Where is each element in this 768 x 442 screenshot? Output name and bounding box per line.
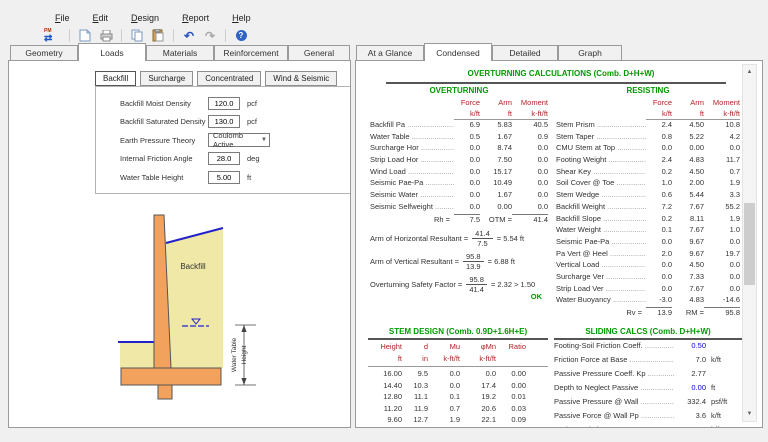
menu-file[interactable]: File — [52, 11, 73, 25]
moment-value: 1.9 — [704, 214, 740, 223]
row-label: Surcharge Hor — [370, 143, 454, 152]
force-value: 0.0 — [646, 284, 672, 293]
field-unit: pcf — [247, 117, 257, 126]
toolbar-separator — [121, 29, 122, 42]
mu-value: 0.1 — [428, 392, 460, 401]
arm-value: 7.67 — [672, 202, 704, 211]
ratio-value: 0.00 — [496, 369, 526, 378]
rm-label: RM = — [672, 308, 704, 317]
new-document-button[interactable] — [77, 28, 93, 43]
table-header-row: ForceArmMoment — [556, 98, 740, 109]
tab-geometry[interactable]: Geometry — [10, 45, 78, 61]
ratio-value: 0.09 — [496, 415, 526, 424]
table-row: Stem Wedge 0.6 5.44 3.3 — [556, 190, 740, 202]
col-unit: k-ft/ft — [512, 109, 548, 120]
sliding-rows: Footing-Soil Friction Coeff. 0.50 Fricti… — [554, 341, 742, 428]
numerator: 95.8 — [463, 252, 484, 262]
copy-button[interactable] — [129, 28, 145, 43]
arm-value: 7.67 — [672, 225, 704, 234]
table-row: 12.80 11.1 0.1 19.2 0.01 — [368, 392, 548, 404]
table-row: Stem Prism 2.4 4.50 10.8 — [556, 120, 740, 132]
moment-value: 0.0 — [512, 178, 548, 187]
earth-pressure-theory-select[interactable]: Coulomb Active ▼ — [208, 133, 270, 147]
load-type-buttons: Backfill Surcharge Concentrated Wind & S… — [95, 71, 337, 86]
height-value: 14.40 — [368, 381, 402, 390]
force-value: 2.4 — [646, 120, 672, 129]
table-row: Soil Cover @ Toe 1.0 2.00 1.9 — [556, 178, 740, 190]
phi-mn-value: 19.2 — [460, 392, 496, 401]
internal-friction-angle-input[interactable] — [208, 152, 240, 165]
formula-label: Overturning Safety Factor = — [370, 280, 462, 289]
scrollbar-thumb[interactable] — [744, 203, 755, 285]
field-label: Backfill Moist Density — [120, 99, 208, 108]
force-value: 0.0 — [646, 237, 672, 246]
field-label: Earth Pressure Theory — [120, 136, 208, 145]
total-moment: 41.4 — [512, 214, 548, 224]
row-label: Depth to Neglect Passive — [554, 383, 674, 392]
col-unit: k-ft/ft — [428, 354, 460, 363]
table-row: Horiz. Resisting Force 10.6 k/ft — [554, 425, 742, 428]
tab-detailed[interactable]: Detailed — [492, 45, 558, 61]
moment-value: 1.9 — [704, 178, 740, 187]
arm-value: 4.50 — [672, 167, 704, 176]
application-window: File Edit Design Report Help PM ⇄ ↶ ↷ ? … — [0, 0, 768, 442]
subtab-concentrated[interactable]: Concentrated — [197, 71, 261, 86]
row-unit: psf/ft — [706, 397, 742, 406]
menu-edit[interactable]: Edit — [90, 11, 112, 25]
subtab-backfill[interactable]: Backfill — [95, 71, 136, 86]
col-unit: ft — [672, 109, 704, 120]
moment-value: 19.7 — [704, 249, 740, 258]
moment-value: 0.0 — [512, 190, 548, 199]
header-underline — [368, 366, 548, 367]
row-unit: k/ft — [706, 411, 742, 420]
table-row: Seismic Pae-Pa 0.0 10.49 0.0 — [370, 178, 548, 190]
force-value: 0.0 — [454, 167, 480, 176]
table-row: Strip Load Ver 0.0 7.67 0.0 — [556, 284, 740, 296]
moment-value: 0.0 — [704, 284, 740, 293]
row-label: Backfill Weight — [556, 202, 646, 211]
title-rule — [386, 82, 726, 84]
otm-label: OTM = — [480, 215, 512, 224]
stem-header-row: Height d Mu φMn Ratio — [368, 342, 548, 354]
height-value: 11.20 — [368, 404, 402, 413]
force-value: 1.0 — [646, 178, 672, 187]
arm-value: 9.67 — [672, 249, 704, 258]
tab-graph[interactable]: Graph — [558, 45, 622, 61]
water-table-height-input[interactable] — [208, 171, 240, 184]
table-units-row: k/ftftk-ft/ft — [370, 109, 548, 120]
force-value: 0.0 — [646, 260, 672, 269]
col-header: d — [402, 342, 428, 351]
new-document-icon — [79, 29, 91, 42]
phi-mn-value: 22.1 — [460, 415, 496, 424]
row-label: Vertical Load — [556, 260, 646, 269]
dimension-label-line2: Height — [241, 345, 248, 364]
tab-loads[interactable]: Loads — [78, 43, 146, 61]
moment-value: 0.0 — [512, 202, 548, 211]
row-label: Backfill Slope — [556, 214, 646, 223]
row-label: Water Weight — [556, 225, 646, 234]
redo-icon: ↷ — [205, 29, 215, 43]
col-header: Arm — [672, 98, 704, 109]
table-row: Strip Load Hor 0.0 7.50 0.0 — [370, 155, 548, 167]
table-row: Footing Weight 2.4 4.83 11.7 — [556, 155, 740, 167]
total-moment: 95.8 — [704, 307, 740, 317]
row-value: 3.6 — [674, 411, 706, 420]
table-row: Seismic Pae-Pa 0.0 9.67 0.0 — [556, 237, 740, 249]
resisting-table: ForceArmMoment k/ftftk-ft/ft Stem Prism … — [556, 98, 740, 319]
undo-button[interactable]: ↶ — [181, 28, 197, 43]
sync-arrows-icon: ⇄ — [44, 34, 52, 43]
field-row: Backfill Saturated Density pcf — [96, 113, 350, 132]
chevron-down-icon: ▼ — [261, 137, 267, 143]
denominator: 13.9 — [466, 262, 481, 271]
chevron-down-icon: ▼ — [747, 411, 753, 417]
phi-mn-value: 17.4 — [460, 381, 496, 390]
col-unit: k-ft/ft — [460, 354, 496, 363]
loads-panel: Backfill Surcharge Concentrated Wind & S… — [8, 60, 351, 428]
overturning-total-row: Rh = 7.5 OTM = 41.4 — [370, 214, 548, 226]
mu-value: 1.9 — [428, 415, 460, 424]
formula-result: = 6.88 ft — [488, 257, 515, 266]
denominator: 7.5 — [477, 239, 487, 248]
moment-value: 0.0 — [512, 155, 548, 164]
force-value: 0.2 — [646, 214, 672, 223]
table-units-row: k/ftftk-ft/ft — [556, 109, 740, 120]
tab-reinforcement[interactable]: Reinforcement — [214, 45, 288, 61]
table-row: 14.40 10.3 0.0 17.4 0.00 — [368, 381, 548, 393]
moment-value: 0.0 — [704, 143, 740, 152]
stem-design-rows: 16.00 9.5 0.0 0.0 0.00 14.40 10.3 0.0 17… — [368, 369, 548, 427]
menu-report[interactable]: Report — [179, 11, 212, 25]
wall-key-shape — [158, 385, 172, 399]
formula-label: Arm of Horizontal Resultant = — [370, 234, 468, 243]
row-value: 10.6 — [674, 425, 706, 428]
resisting-total-row: Rv = 13.9 RM = 95.8 — [556, 307, 740, 319]
arm-value: 0.00 — [480, 202, 512, 211]
mu-value: 0.7 — [428, 404, 460, 413]
table-row: Backfill Slope 0.2 8.11 1.9 — [556, 214, 740, 226]
tab-general[interactable]: General — [288, 45, 350, 61]
row-label: Shear Key — [556, 167, 646, 176]
moment-value: 1.0 — [704, 225, 740, 234]
col-header: Force — [454, 98, 480, 109]
force-value: 0.0 — [646, 272, 672, 281]
force-value: 0.5 — [454, 132, 480, 141]
pm-toggle-button[interactable]: PM ⇄ — [44, 28, 62, 43]
scroll-down-button[interactable]: ▼ — [743, 407, 756, 421]
row-label: Strip Load Hor — [370, 155, 454, 164]
table-row: Friction Force at Base 7.0 k/ft — [554, 355, 742, 368]
field-label: Water Table Height — [120, 173, 208, 182]
row-label: Strip Load Ver — [556, 284, 646, 293]
table-row: Surcharge Hor 0.0 8.74 0.0 — [370, 143, 548, 155]
moment-value: 10.8 — [704, 120, 740, 129]
fraction: 95.813.9 — [463, 252, 484, 271]
table-row: Passive Pressure @ Wall 332.4 psf/ft — [554, 397, 742, 410]
row-unit: k/ft — [706, 425, 742, 428]
col-unit: k/ft — [646, 109, 672, 120]
arm-value: 1.67 — [480, 190, 512, 199]
sliding-calcs-section: SLIDING CALCS (Comb. D+H+W) Footing-Soil… — [554, 327, 742, 428]
ratio-value: 0.01 — [496, 392, 526, 401]
moment-value: 0.7 — [704, 167, 740, 176]
col-header: Height — [368, 342, 402, 351]
total-label: Rv = — [556, 308, 646, 317]
field-unit: deg — [247, 154, 260, 163]
paste-button[interactable] — [150, 28, 166, 43]
col-header: Force — [646, 98, 672, 109]
field-unit: ft — [247, 173, 251, 182]
col-unit: k/ft — [454, 109, 480, 120]
col-header: Mu — [428, 342, 460, 351]
field-row: Earth Pressure Theory Coulomb Active ▼ — [96, 131, 350, 150]
undo-icon: ↶ — [184, 29, 194, 43]
chevron-up-icon: ▲ — [747, 69, 753, 75]
moment-value: 0.0 — [704, 260, 740, 269]
row-label: Stem Wedge — [556, 190, 646, 199]
retaining-wall-diagram: Backfill Water Table Height — [107, 204, 263, 416]
tab-at-a-glance[interactable]: At a Glance — [356, 45, 424, 61]
row-unit: k/ft — [706, 355, 742, 364]
d-value: 10.3 — [402, 381, 428, 390]
moment-value: 0.0 — [512, 167, 548, 176]
tab-condensed[interactable]: Condensed — [424, 43, 492, 61]
force-value: 0.0 — [454, 202, 480, 211]
table-row: Water Buoyancy -3.0 4.83 -14.6 — [556, 295, 740, 307]
force-value: 0.0 — [454, 190, 480, 199]
backfill-group-box: Backfill Moist Density pcf Backfill Satu… — [95, 86, 351, 194]
table-row: Footing-Soil Friction Coeff. 0.50 — [554, 341, 742, 354]
redo-button[interactable]: ↷ — [202, 28, 218, 43]
row-value: 0.00 — [674, 383, 706, 392]
moment-value: 11.7 — [704, 155, 740, 164]
toolbar: PM ⇄ ↶ ↷ ? — [0, 27, 768, 44]
row-label: Surcharge Ver — [556, 272, 646, 281]
col-unit: ft — [480, 109, 512, 120]
arm-value: 5.83 — [480, 120, 512, 129]
d-value: 11.9 — [402, 404, 428, 413]
row-label: Passive Force @ Wall Pp — [554, 411, 674, 420]
row-value: 7.0 — [674, 355, 706, 364]
table-row: Passive Force @ Wall Pp 3.6 k/ft — [554, 411, 742, 424]
vertical-scrollbar[interactable]: ▲ ▼ — [742, 64, 757, 422]
resisting-heading: RESISTING — [556, 86, 740, 95]
row-label: Stem Prism — [556, 120, 646, 129]
row-value: 332.4 — [674, 397, 706, 406]
menu-help[interactable]: Help — [229, 11, 254, 25]
stem-units-row: ft in k-ft/ft k-ft/ft — [368, 354, 548, 366]
table-row: CMU Stem at Top 0.0 0.00 0.0 — [556, 143, 740, 155]
row-label: CMU Stem at Top — [556, 143, 646, 152]
scroll-up-button[interactable]: ▲ — [743, 65, 756, 79]
row-label: Footing-Soil Friction Coeff. — [554, 341, 674, 350]
force-value: 7.2 — [646, 202, 672, 211]
row-label: Seismic Water — [370, 190, 454, 199]
backfill-moist-density-input[interactable] — [208, 97, 240, 110]
section-rule — [554, 338, 742, 340]
formula-result: = 2.32 > 1.50 — [491, 280, 535, 289]
row-label: Stem Taper — [556, 132, 646, 141]
arm-value: 4.83 — [672, 155, 704, 164]
moment-value: 40.5 — [512, 120, 548, 129]
diagram-backfill-label: Backfill — [180, 262, 206, 271]
ratio-value: 0.03 — [496, 404, 526, 413]
arm-value: 1.67 — [480, 132, 512, 141]
force-value: 0.8 — [646, 132, 672, 141]
height-value: 16.00 — [368, 369, 402, 378]
help-icon: ? — [236, 30, 247, 41]
backfill-soil-shape — [166, 228, 223, 368]
field-label: Backfill Saturated Density — [120, 117, 208, 126]
dimension-arrow-top — [241, 325, 246, 332]
menu-design[interactable]: Design — [128, 11, 162, 25]
table-row: Water Weight 0.1 7.67 1.0 — [556, 225, 740, 237]
col-unit: k-ft/ft — [704, 109, 740, 120]
toolbar-separator — [173, 29, 174, 42]
force-value: 0.0 — [454, 143, 480, 152]
arm-value: 10.49 — [480, 178, 512, 187]
force-value: 6.9 — [454, 120, 480, 129]
table-row: Passive Pressure Coeff. Kp 2.77 — [554, 369, 742, 382]
d-value: 12.7 — [402, 415, 428, 424]
table-header-row: ForceArmMoment — [370, 98, 548, 109]
table-row: Backfill Pa 6.9 5.83 40.5 — [370, 120, 548, 132]
table-row: Depth to Neglect Passive 0.00 ft — [554, 383, 742, 396]
arm-value: 5.44 — [672, 190, 704, 199]
moment-value: 55.2 — [704, 202, 740, 211]
arm-value: 9.67 — [672, 237, 704, 246]
col-unit: ft — [368, 354, 402, 363]
moment-value: 0.0 — [512, 143, 548, 152]
force-value: 0.2 — [646, 167, 672, 176]
arm-value: 4.50 — [672, 260, 704, 269]
phi-mn-value: 0.0 — [460, 369, 496, 378]
numerator: 41.4 — [472, 229, 493, 239]
d-value: 9.5 — [402, 369, 428, 378]
col-unit: in — [402, 354, 428, 363]
d-value: 11.1 — [402, 392, 428, 401]
row-label: Seismic Pae-Pa — [370, 178, 454, 187]
print-button[interactable] — [98, 28, 114, 43]
ok-status-label: OK — [370, 292, 542, 301]
table-row: Surcharge Ver 0.0 7.33 0.0 — [556, 272, 740, 284]
arm-value: 4.83 — [672, 295, 704, 304]
table-row: Pa Vert @ Heel 2.0 9.67 19.7 — [556, 249, 740, 261]
resisting-rows: Stem Prism 2.4 4.50 10.8 Stem Taper 0.8 … — [556, 120, 740, 307]
row-label: Seismic Pae-Pa — [556, 237, 646, 246]
col-header: Moment — [704, 98, 740, 109]
overturning-rows: Backfill Pa 6.9 5.83 40.5 Water Table 0.… — [370, 120, 548, 214]
condensed-results-panel: OVERTURNING CALCULATIONS (Comb. D+H+W) O… — [355, 60, 763, 428]
dimension-label-line1: Water Table — [231, 337, 238, 372]
moment-value: 0.0 — [704, 272, 740, 281]
section-rule — [368, 338, 548, 340]
dimension-arrow-bottom — [241, 378, 246, 385]
row-label: Friction Force at Base — [554, 355, 674, 364]
row-label: Pa Vert @ Heel — [556, 249, 646, 258]
force-value: 0.0 — [454, 178, 480, 187]
arm-value: 7.33 — [672, 272, 704, 281]
field-row: Backfill Moist Density pcf — [96, 94, 350, 113]
force-value: -3.0 — [646, 295, 672, 304]
row-label: Horiz. Resisting Force — [554, 425, 674, 428]
col-header: Moment — [512, 98, 548, 109]
arm-value: 15.17 — [480, 167, 512, 176]
backfill-saturated-density-input[interactable] — [208, 115, 240, 128]
vertical-resultant-formula: Arm of Vertical Resultant = 95.813.9 = 6… — [370, 252, 548, 271]
table-row: Vertical Load 0.0 4.50 0.0 — [556, 260, 740, 272]
table-row: Water Table 0.5 1.67 0.9 — [370, 132, 548, 144]
row-label: Footing Weight — [556, 155, 646, 164]
col-header: Arm — [480, 98, 512, 109]
col-header: φMn — [460, 342, 496, 351]
toolbar-separator — [225, 29, 226, 42]
copy-icon — [131, 29, 143, 42]
toe-soil-shape — [120, 342, 154, 368]
horizontal-resultant-formula: Arm of Horizontal Resultant = 41.47.5 = … — [370, 229, 548, 248]
paste-icon — [152, 29, 164, 42]
force-value: 2.0 — [646, 249, 672, 258]
table-row: 16.00 9.5 0.0 0.0 0.00 — [368, 369, 548, 381]
force-value: 0.0 — [454, 155, 480, 164]
tab-materials[interactable]: Materials — [146, 45, 214, 61]
formula-result: = 5.54 ft — [497, 234, 524, 243]
mu-value: 0.0 — [428, 381, 460, 390]
subtab-wind-seismic[interactable]: Wind & Seismic — [265, 71, 337, 86]
row-label: Soil Cover @ Toe — [556, 178, 646, 187]
row-label: Backfill Pa — [370, 120, 454, 129]
table-row: 11.20 11.9 0.7 20.6 0.03 — [368, 404, 548, 416]
total-label: Rh = — [370, 215, 454, 224]
arm-value: 8.11 — [672, 214, 704, 223]
arm-value: 5.22 — [672, 132, 704, 141]
row-value: 0.50 — [674, 341, 706, 350]
row-label: Wind Load — [370, 167, 454, 176]
moment-value: 0.9 — [512, 132, 548, 141]
table-row: Wind Load 0.0 15.17 0.0 — [370, 167, 548, 179]
moment-value: 3.3 — [704, 190, 740, 199]
arm-value: 7.50 — [480, 155, 512, 164]
table-row: Backfill Weight 7.2 7.67 55.2 — [556, 202, 740, 214]
subtab-surcharge[interactable]: Surcharge — [140, 71, 193, 86]
sliding-calcs-title: SLIDING CALCS (Comb. D+H+W) — [554, 327, 742, 336]
moment-value: 0.0 — [704, 237, 740, 246]
force-value: 0.1 — [646, 225, 672, 234]
phi-mn-value: 20.6 — [460, 404, 496, 413]
height-value: 12.80 — [368, 392, 402, 401]
print-icon — [100, 30, 113, 42]
total-force: 7.5 — [454, 214, 480, 224]
overturning-calculations-title: OVERTURNING CALCULATIONS (Comb. D+H+W) — [376, 69, 746, 78]
arm-value: 4.50 — [672, 120, 704, 129]
formula-label: Arm of Vertical Resultant = — [370, 257, 459, 266]
force-value: 2.4 — [646, 155, 672, 164]
row-label: Seismic Selfweight — [370, 202, 454, 211]
toolbar-separator — [69, 29, 70, 42]
table-row: Stem Taper 0.8 5.22 4.2 — [556, 132, 740, 144]
row-label: Water Buoyancy — [556, 295, 646, 304]
height-value: 9.60 — [368, 415, 402, 424]
help-button[interactable]: ? — [233, 28, 249, 43]
force-value: 0.6 — [646, 190, 672, 199]
moment-value: -14.6 — [704, 295, 740, 304]
stem-design-title: STEM DESIGN (Comb. 0.9D+1.6H+E) — [368, 327, 548, 336]
table-row: Seismic Selfweight 0.0 0.00 0.0 — [370, 202, 548, 214]
menu-bar: File Edit Design Report Help — [0, 9, 768, 27]
overturning-heading: OVERTURNING — [370, 86, 548, 95]
